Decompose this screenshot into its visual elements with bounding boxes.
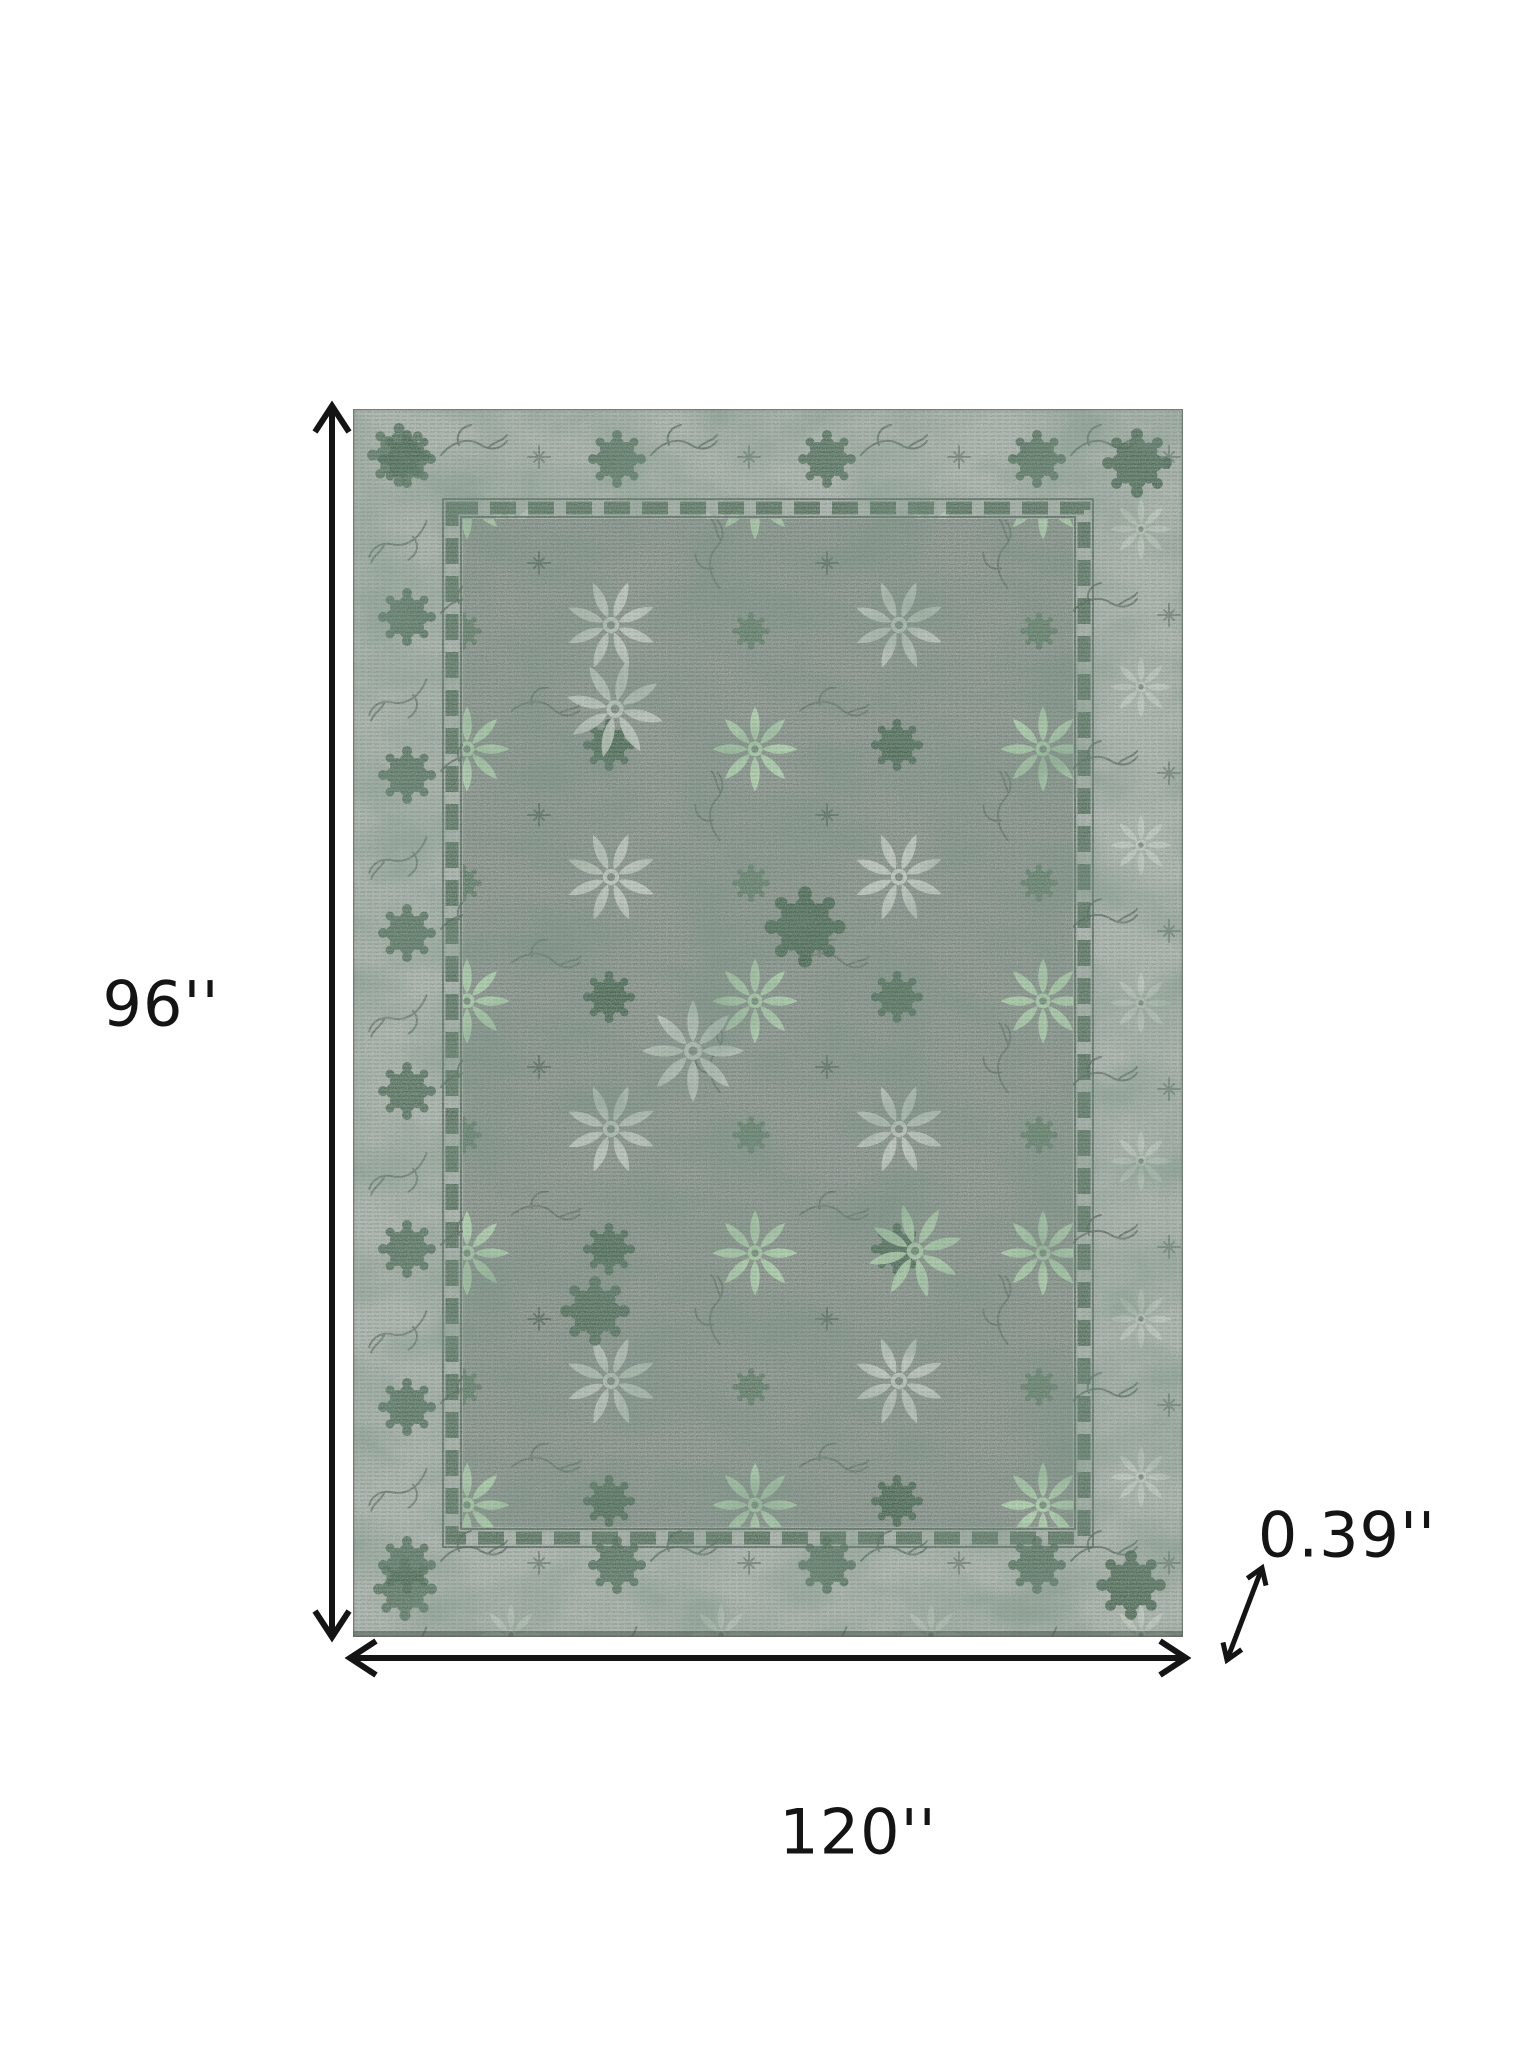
rug-image xyxy=(353,409,1183,1637)
thickness-dimension-arrow xyxy=(1227,1568,1262,1660)
height-label: 96'' xyxy=(103,968,220,1041)
product-dimension-diagram: 96'' 120'' 0.39'' xyxy=(0,0,1536,2048)
width-label: 120'' xyxy=(779,1796,936,1869)
thickness-label: 0.39'' xyxy=(1258,1499,1436,1572)
